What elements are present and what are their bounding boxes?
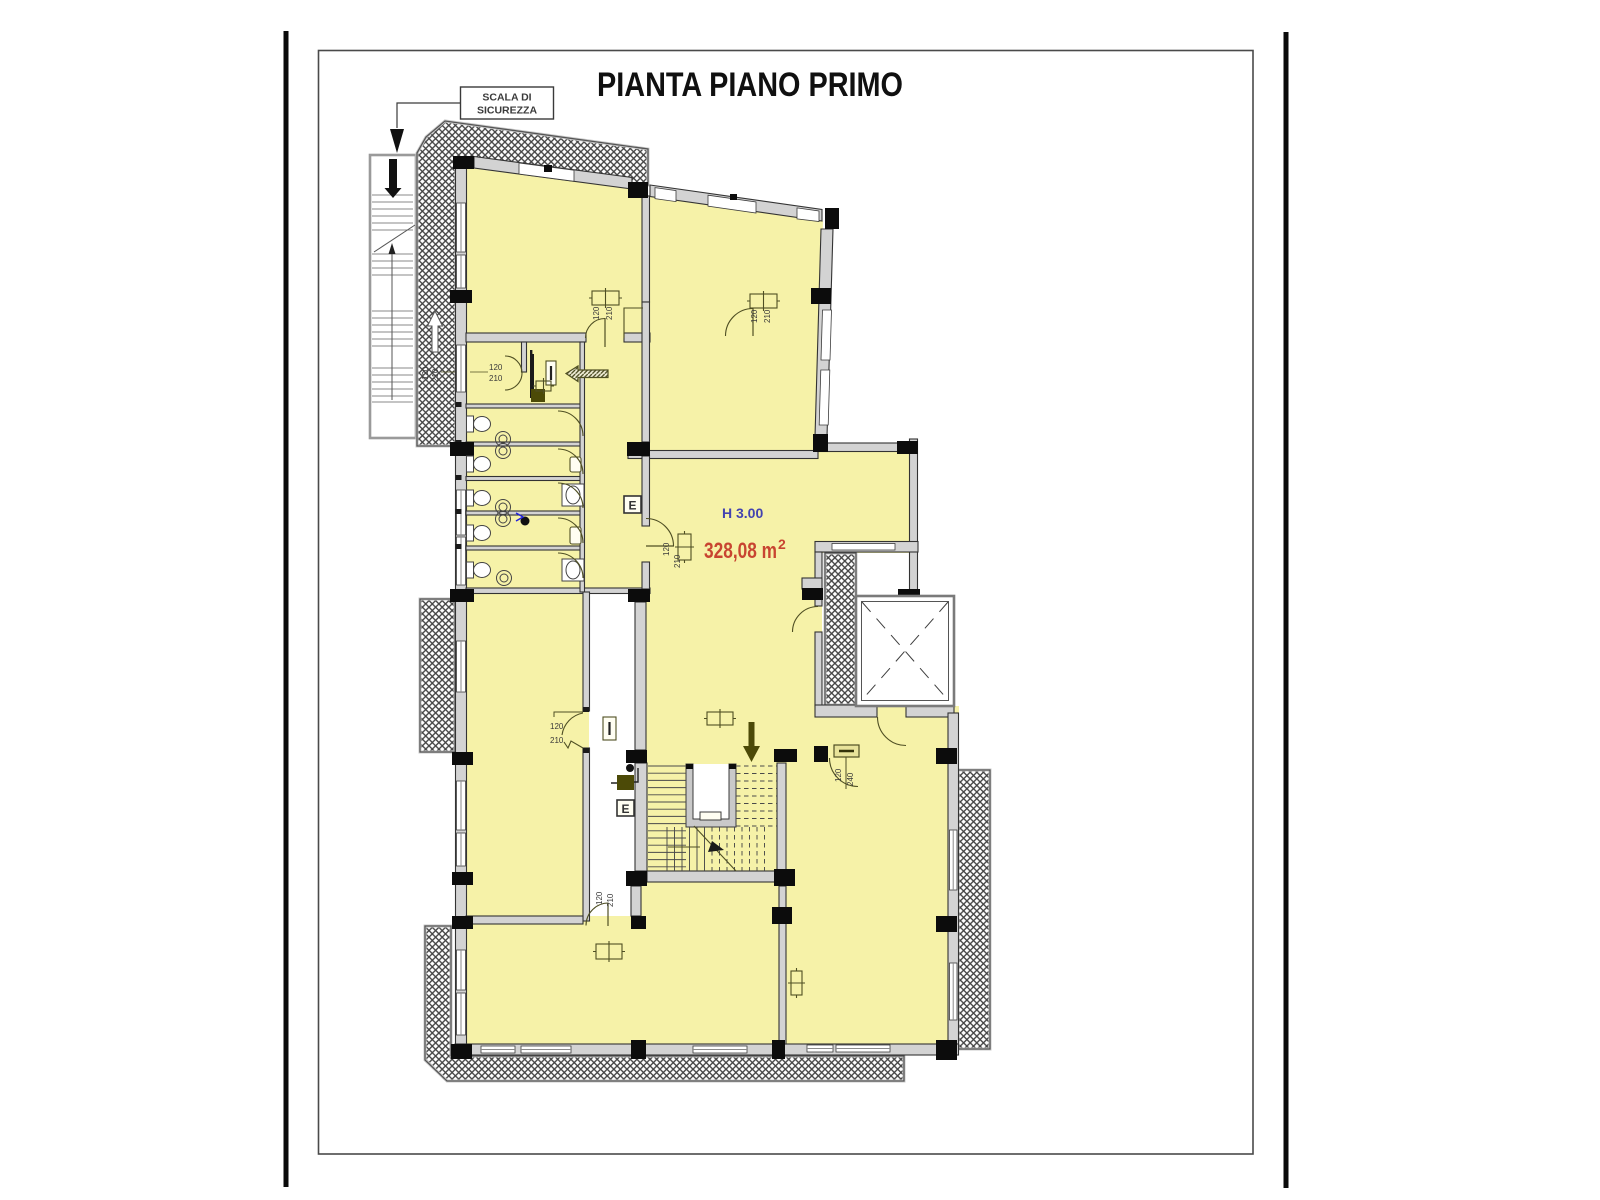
svg-text:120: 120 (592, 306, 601, 320)
svg-text:120: 120 (834, 768, 843, 782)
svg-text:240: 240 (846, 772, 855, 786)
svg-text:210: 210 (763, 309, 772, 323)
svg-text:120: 120 (595, 891, 604, 905)
svg-text:120: 120 (550, 722, 564, 731)
svg-text:210: 210 (550, 736, 564, 745)
svg-text:120: 120 (421, 366, 430, 380)
svg-text:E: E (621, 802, 629, 816)
svg-text:210: 210 (489, 374, 503, 383)
svg-text:2: 2 (778, 536, 786, 552)
svg-text:SCALA DI: SCALA DI (482, 92, 531, 104)
svg-text:120: 120 (750, 309, 759, 323)
svg-text:SICUREZZA: SICUREZZA (477, 105, 538, 117)
svg-text:210: 210 (606, 893, 615, 907)
svg-text:H 3.00: H 3.00 (722, 505, 763, 521)
svg-text:120: 120 (489, 363, 503, 372)
svg-text:PIANTA PIANO PRIMO: PIANTA PIANO PRIMO (597, 66, 903, 104)
svg-text:210: 210 (431, 368, 440, 382)
svg-text:210: 210 (605, 306, 614, 320)
svg-text:E: E (628, 499, 636, 513)
svg-text:328,08 m: 328,08 m (704, 538, 777, 563)
svg-text:120: 120 (662, 542, 671, 556)
svg-text:210: 210 (673, 554, 682, 568)
